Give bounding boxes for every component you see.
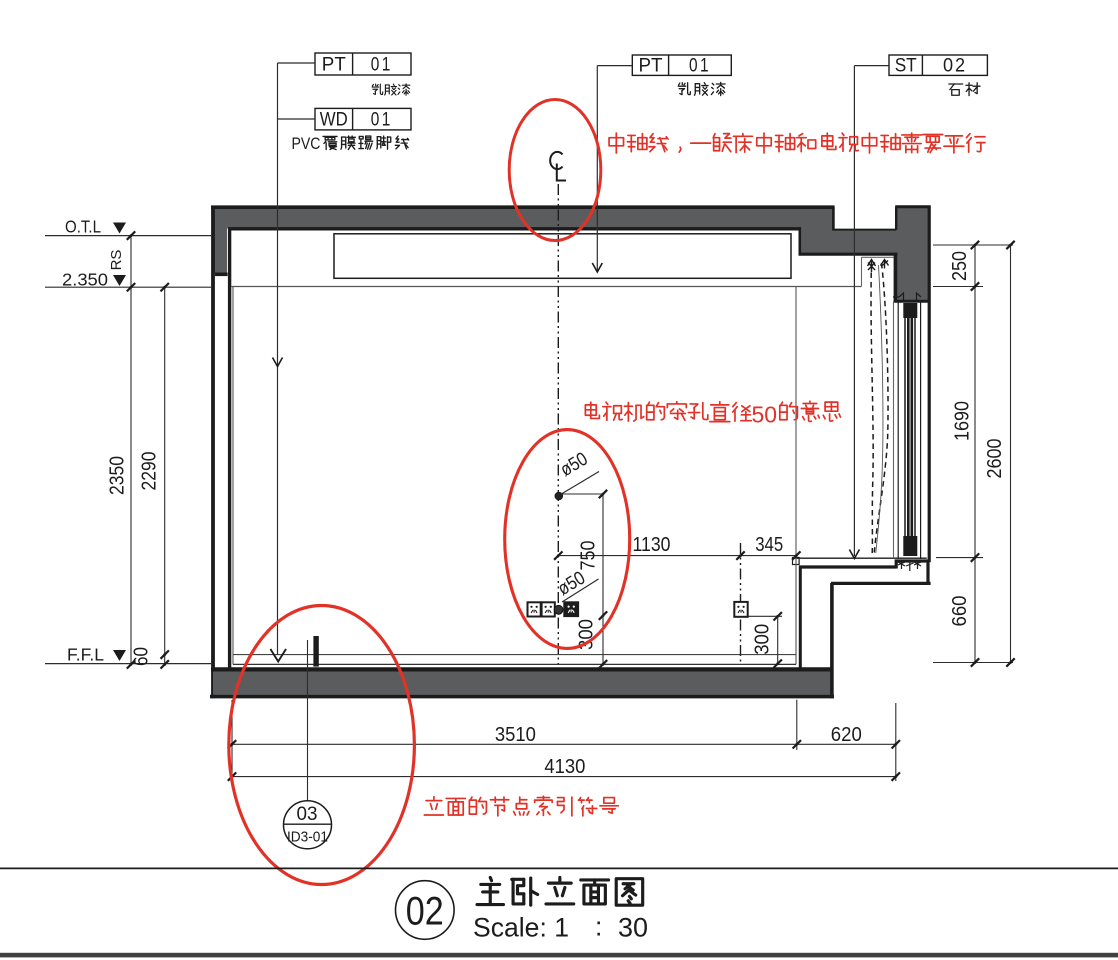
svg-text:O.T.L: O.T.L: [65, 217, 101, 237]
svg-text:345: 345: [755, 534, 783, 556]
svg-text:01: 01: [371, 110, 393, 131]
svg-text:01: 01: [689, 56, 711, 77]
svg-text:PVC: PVC: [292, 135, 321, 153]
svg-text::: :: [595, 912, 602, 942]
svg-text:660: 660: [949, 596, 971, 627]
svg-text:2600: 2600: [984, 439, 1006, 479]
svg-text:60: 60: [131, 647, 153, 666]
svg-text:30: 30: [618, 913, 648, 943]
svg-text:02: 02: [943, 56, 967, 77]
svg-text:0: 0: [764, 401, 777, 427]
svg-text:RS: RS: [108, 250, 125, 271]
svg-text:4130: 4130: [544, 756, 585, 778]
svg-text:1130: 1130: [633, 534, 671, 556]
svg-text:5: 5: [752, 401, 765, 427]
svg-text:3510: 3510: [495, 724, 536, 746]
svg-text:01: 01: [371, 55, 393, 76]
svg-text:ID3-01: ID3-01: [287, 829, 328, 846]
svg-text:2.350: 2.350: [62, 270, 108, 290]
svg-text:750: 750: [578, 541, 600, 571]
svg-text:2290: 2290: [138, 452, 160, 491]
svg-text:1690: 1690: [952, 401, 974, 441]
svg-text:WD: WD: [320, 110, 348, 131]
svg-text:03: 03: [297, 803, 318, 825]
svg-text:250: 250: [949, 251, 971, 281]
svg-text:620: 620: [831, 724, 862, 746]
svg-text:300: 300: [752, 624, 774, 655]
svg-text:PT: PT: [639, 56, 663, 77]
svg-text:F.F.L: F.F.L: [67, 645, 104, 665]
svg-text:PT: PT: [322, 55, 346, 76]
svg-text:ST: ST: [895, 56, 917, 77]
svg-text:2350: 2350: [107, 456, 129, 495]
svg-text:Scale: 1: Scale: 1: [473, 913, 569, 943]
svg-text:02: 02: [406, 890, 444, 934]
